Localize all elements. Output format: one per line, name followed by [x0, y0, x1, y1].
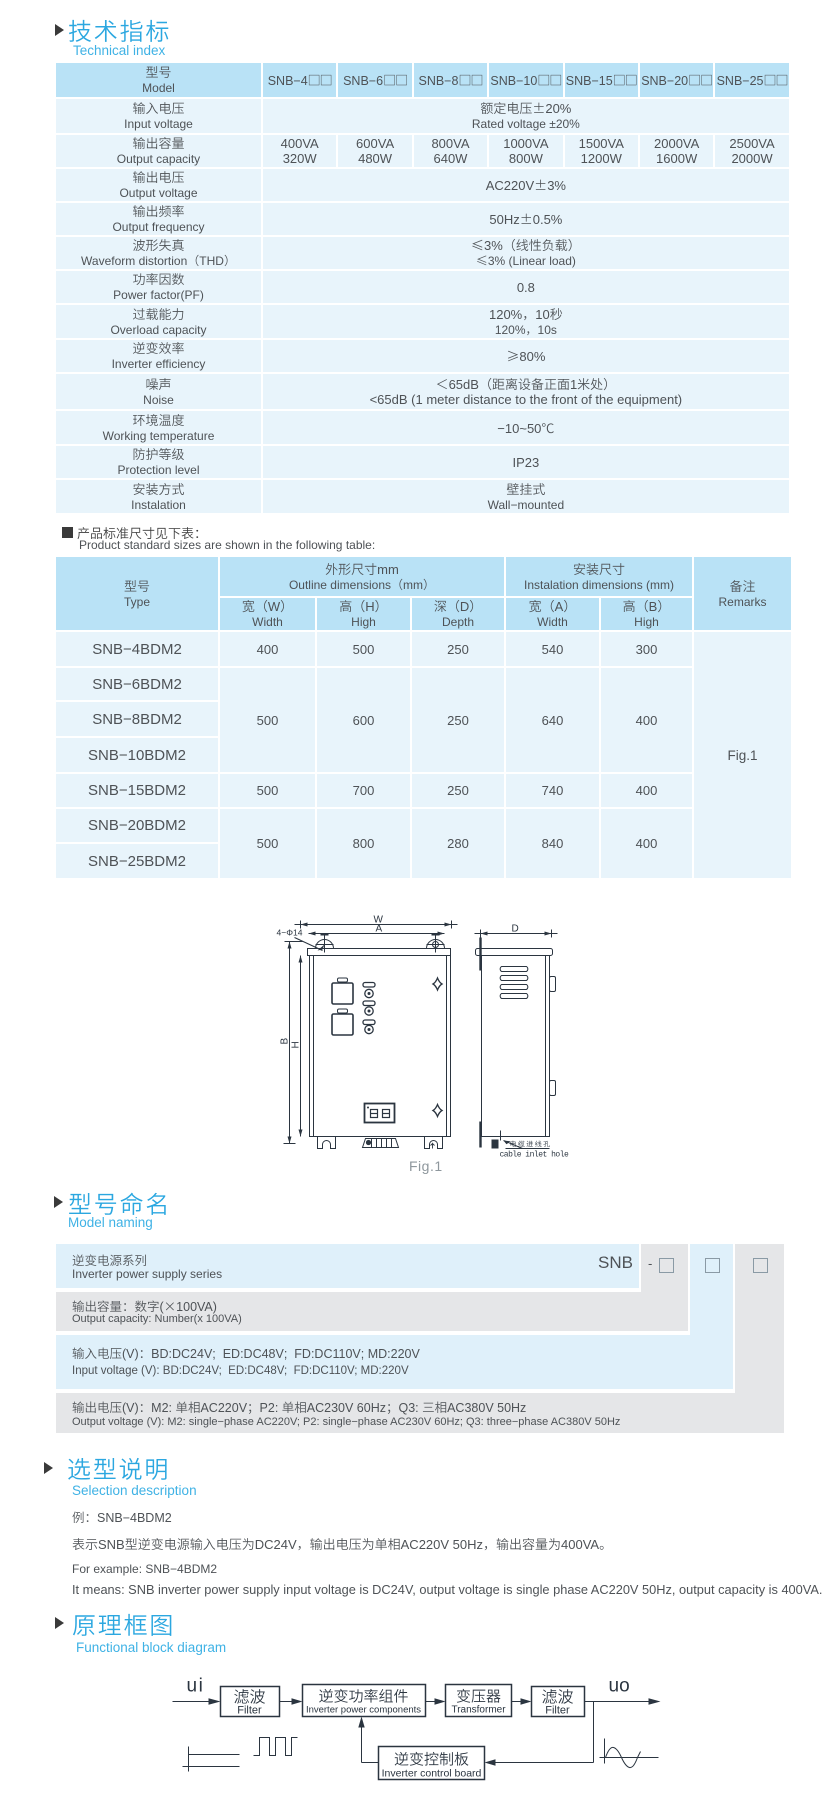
svg-text:变压器: 变压器: [456, 1686, 501, 1707]
svg-text:Filter: Filter: [237, 1705, 262, 1717]
svg-text:ui: ui: [187, 1676, 205, 1697]
svg-text:Filter: Filter: [545, 1705, 570, 1717]
svg-text:uo: uo: [609, 1676, 630, 1697]
svg-text:A: A: [376, 924, 383, 935]
svg-text:Inverter power components: Inverter power components: [306, 1705, 421, 1716]
svg-text:4−Φ14: 4−Φ14: [277, 928, 303, 938]
svg-text:cable inlet hole: cable inlet hole: [500, 1151, 570, 1160]
svg-text:B: B: [280, 1038, 291, 1045]
svg-text:电缆进线孔: 电缆进线孔: [510, 1140, 552, 1150]
svg-text:H: H: [291, 1041, 302, 1048]
svg-text:逆变控制板: 逆变控制板: [394, 1749, 469, 1770]
svg-text:Inverter control board: Inverter control board: [382, 1768, 482, 1780]
svg-text:Transformer: Transformer: [451, 1705, 506, 1716]
svg-text:D: D: [512, 924, 519, 935]
svg-text:逆变功率组件: 逆变功率组件: [318, 1686, 408, 1707]
